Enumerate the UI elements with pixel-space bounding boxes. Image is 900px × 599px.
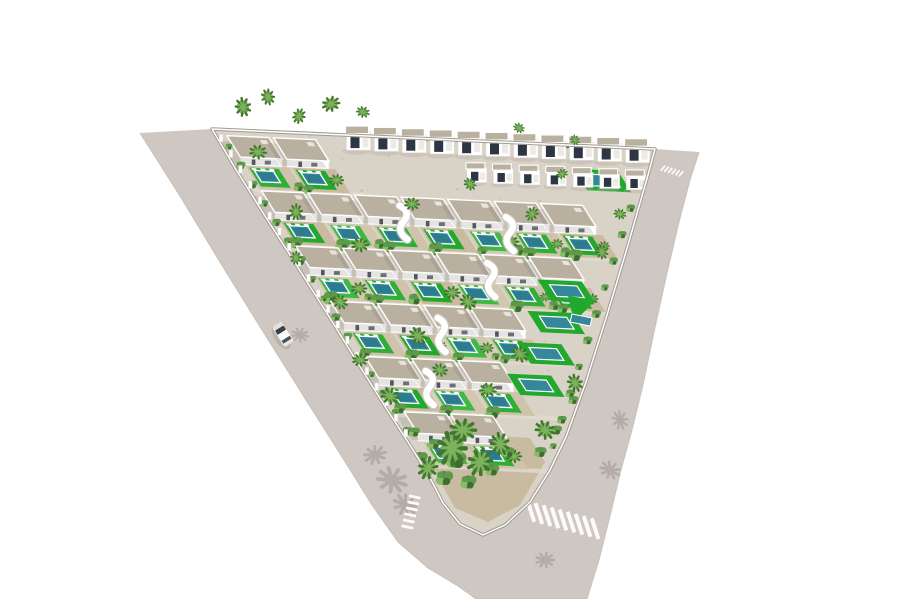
- house-roof: [572, 168, 591, 174]
- house-roof: [346, 126, 369, 134]
- house-window: [574, 147, 583, 158]
- pillar: [219, 135, 223, 143]
- house-window: [351, 137, 360, 148]
- house-roof: [373, 127, 396, 134]
- townhouse: [566, 136, 594, 165]
- house-roof: [493, 164, 512, 170]
- pillar: [278, 228, 282, 236]
- house-terrace: [480, 173, 485, 180]
- house-window: [498, 173, 505, 182]
- house-roof: [599, 169, 618, 175]
- house-terrace: [614, 150, 620, 159]
- ground-texture-dot: [252, 191, 253, 192]
- ground-texture-dot: [498, 491, 500, 493]
- house-window: [434, 141, 443, 152]
- townhouse: [544, 166, 567, 189]
- pillar: [375, 383, 379, 391]
- townhouse: [426, 130, 454, 159]
- house-roof: [466, 163, 485, 169]
- house-window: [630, 179, 637, 188]
- pillar: [394, 414, 398, 422]
- pillar: [258, 197, 262, 205]
- townhouse: [490, 164, 513, 187]
- ground-texture-dot: [376, 169, 377, 170]
- townhouse: [343, 126, 371, 155]
- house-window: [518, 145, 527, 156]
- ground-texture-dot: [456, 188, 458, 190]
- house-terrace: [613, 179, 618, 186]
- ground-texture-dot: [543, 340, 545, 342]
- architectural-render: [0, 0, 900, 599]
- house-roof: [519, 165, 538, 171]
- townhouse: [622, 139, 650, 168]
- house-window: [630, 150, 639, 161]
- townhouse: [517, 165, 540, 188]
- house-window: [490, 143, 499, 154]
- townhouse: [482, 132, 510, 161]
- ground-texture-dot: [367, 190, 369, 192]
- render-canvas: [0, 0, 900, 599]
- house-terrace: [587, 177, 592, 184]
- house-terrace: [474, 143, 480, 152]
- house-roof: [597, 138, 620, 146]
- townhouse: [594, 138, 622, 167]
- ground-texture-dot: [533, 487, 535, 489]
- townhouse: [538, 135, 566, 164]
- house-roof: [401, 129, 424, 137]
- townhouse: [597, 169, 620, 192]
- pillar: [249, 181, 253, 189]
- pillar: [346, 336, 350, 344]
- pillar: [229, 150, 233, 158]
- house-terrace: [507, 174, 512, 181]
- townhouse: [398, 129, 426, 158]
- house-roof: [625, 170, 644, 176]
- townhouse: [370, 127, 398, 155]
- pillar: [287, 243, 291, 251]
- pillar: [365, 367, 369, 375]
- house-window: [462, 142, 471, 153]
- pillar: [326, 305, 330, 313]
- house-roof: [485, 132, 508, 140]
- house-window: [524, 174, 531, 183]
- house-window: [604, 178, 611, 187]
- townhouse: [570, 168, 593, 191]
- ground-texture-dot: [341, 157, 343, 159]
- house-window: [577, 177, 584, 186]
- house-roof: [541, 135, 564, 143]
- house-terrace: [642, 151, 648, 160]
- house-window: [471, 172, 478, 181]
- house-terrace: [418, 141, 424, 150]
- house-window: [378, 138, 387, 149]
- house-terrace: [530, 146, 536, 155]
- house-roof: [513, 134, 536, 142]
- house-terrace: [558, 147, 564, 156]
- house-roof: [625, 139, 648, 147]
- house-terrace: [390, 139, 396, 148]
- ground-texture-dot: [547, 369, 549, 371]
- pillar: [317, 290, 321, 298]
- townhouse: [510, 134, 538, 163]
- pillar: [239, 166, 243, 174]
- ground-texture-dot: [539, 200, 541, 202]
- house-terrace: [533, 175, 538, 182]
- house-terrace: [363, 138, 369, 147]
- pillar: [336, 321, 340, 329]
- house-terrace: [446, 142, 452, 151]
- house-window: [406, 140, 415, 151]
- ground-texture-dot: [499, 198, 501, 200]
- house-roof: [457, 131, 480, 139]
- ground-texture-dot: [360, 189, 362, 191]
- house-terrace: [586, 148, 592, 157]
- house-window: [551, 175, 558, 184]
- pillar: [307, 274, 311, 282]
- pillar: [404, 429, 408, 437]
- pillar: [268, 212, 272, 220]
- house-window: [602, 149, 611, 160]
- house-roof: [429, 130, 452, 138]
- townhouse: [454, 131, 482, 160]
- house-window: [546, 146, 555, 157]
- house-terrace: [502, 144, 508, 153]
